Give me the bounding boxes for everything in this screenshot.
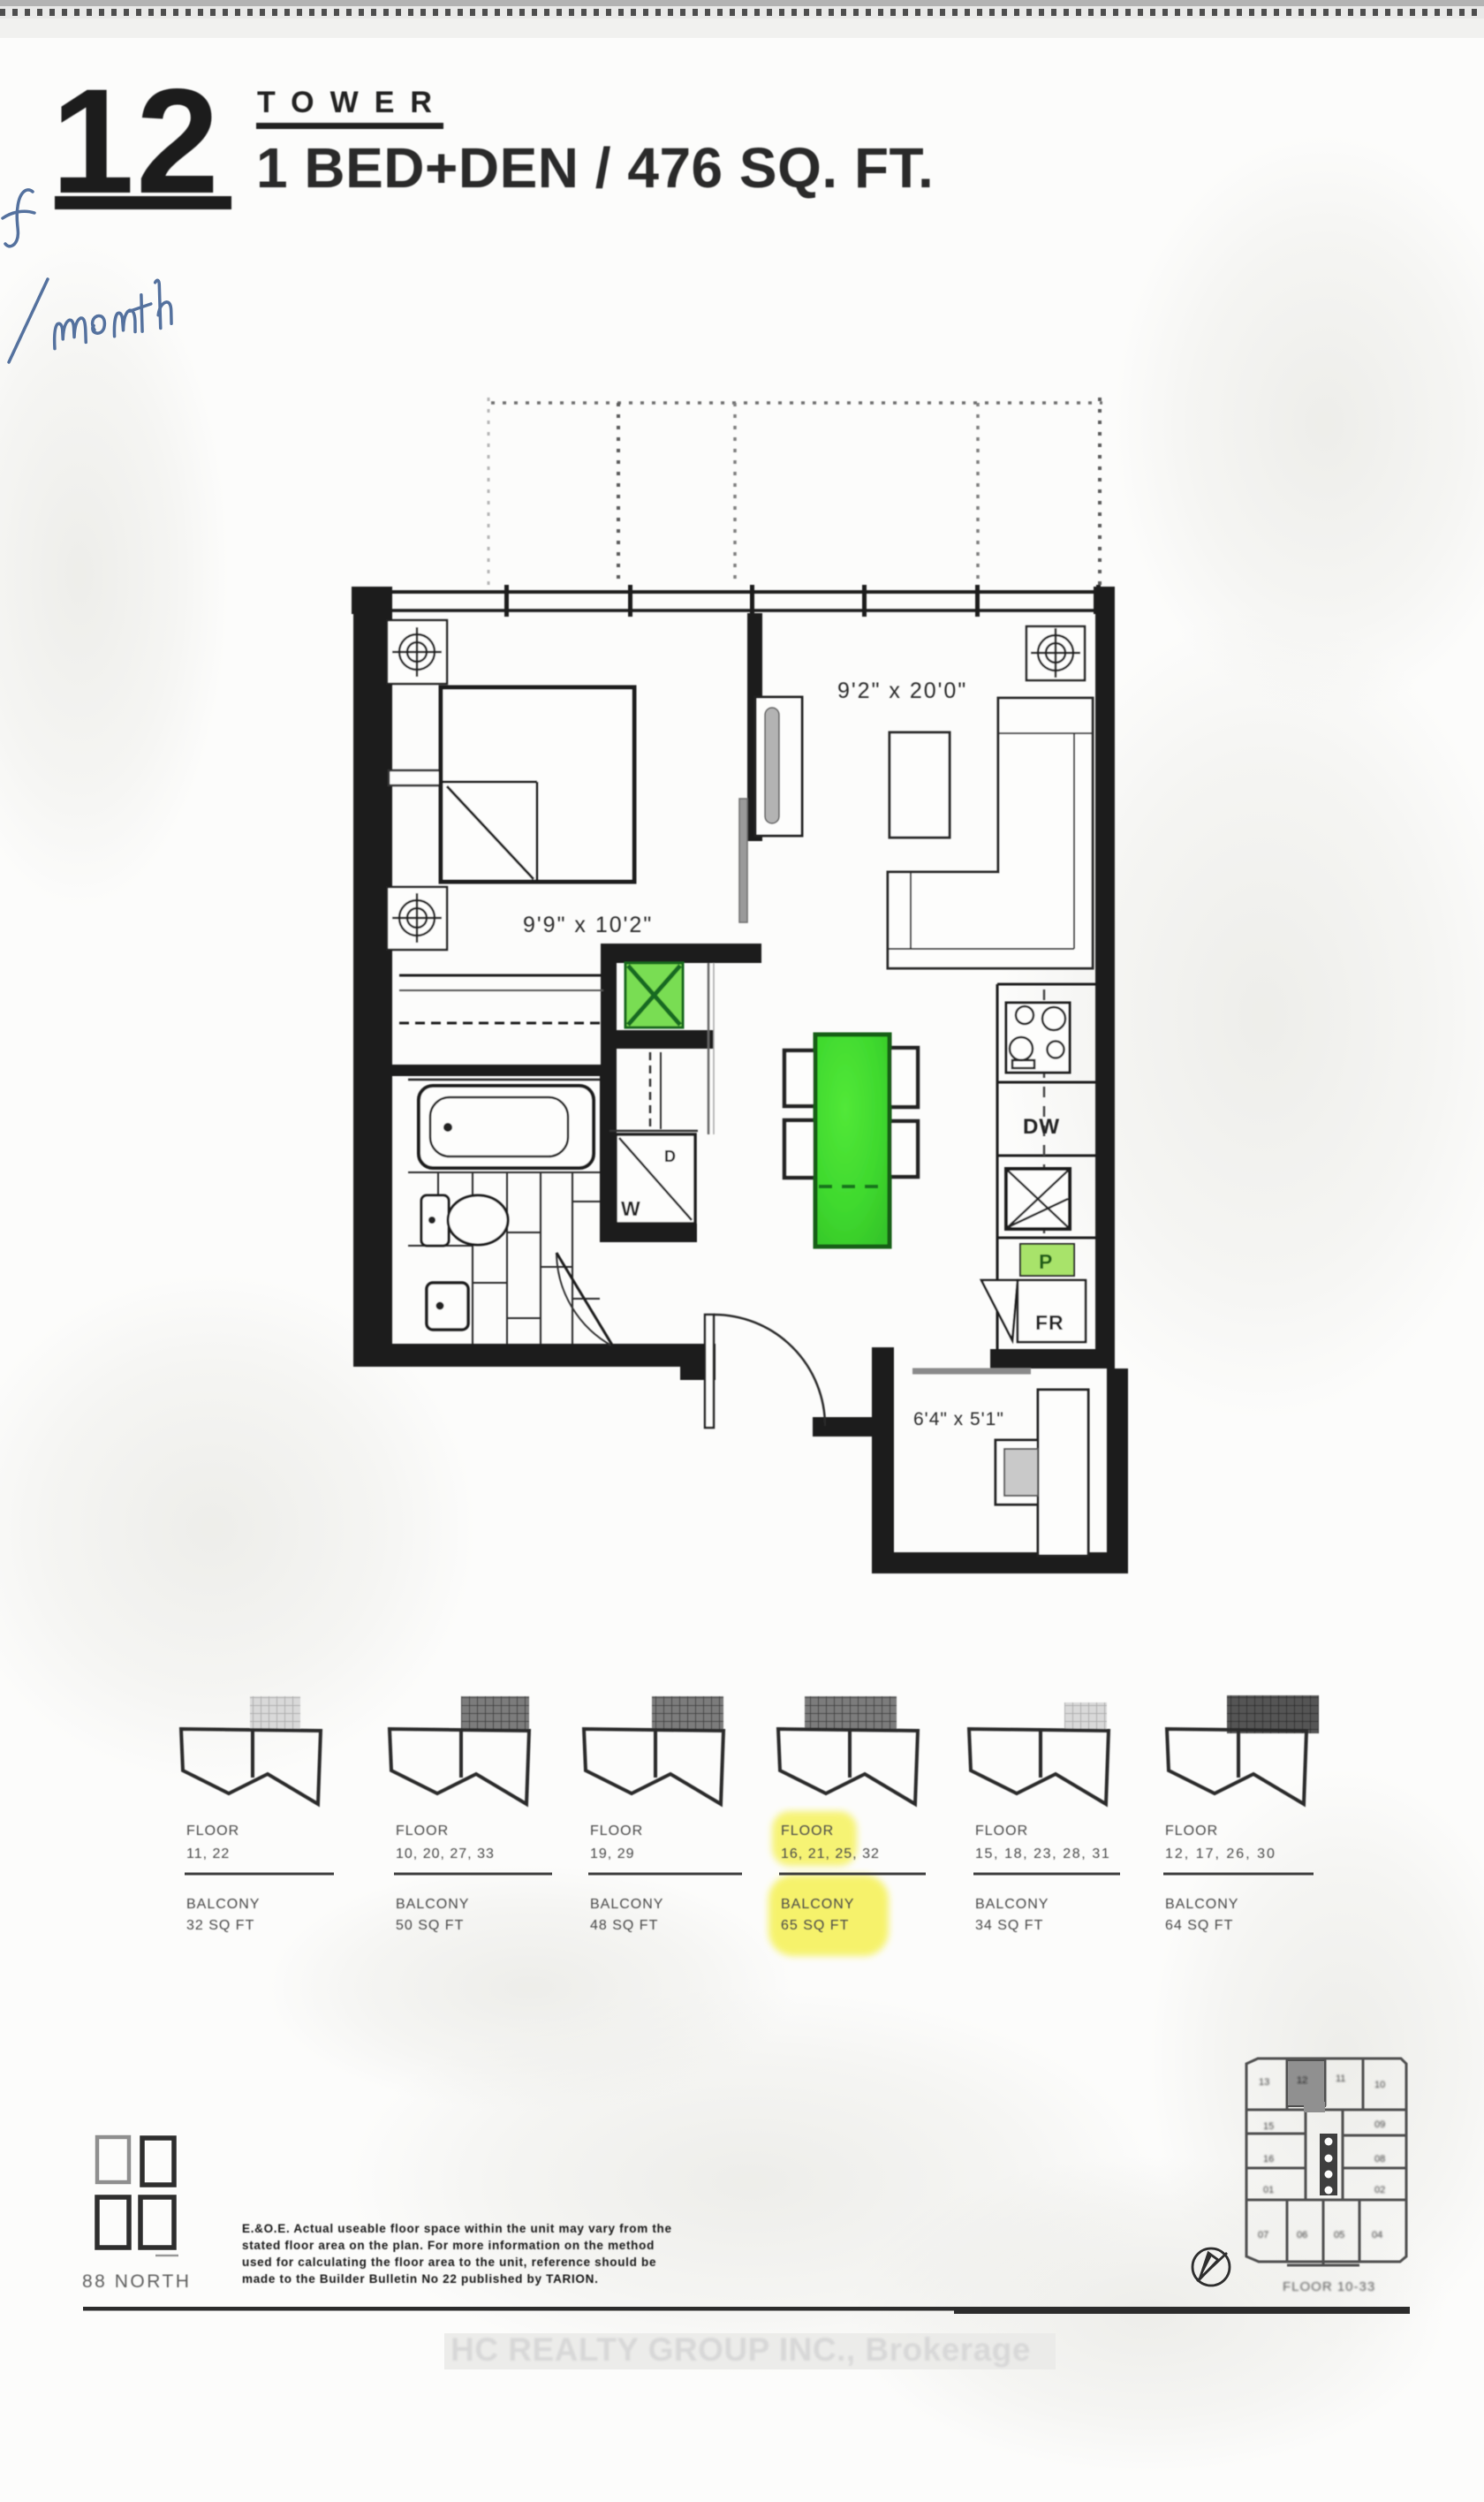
- svg-text:P: P: [1039, 1250, 1052, 1273]
- svg-text:1 BED+DEN / 476 SQ. FT.: 1 BED+DEN / 476 SQ. FT.: [256, 136, 934, 200]
- svg-text:12, 17, 26, 30: 12, 17, 26, 30: [1165, 1846, 1276, 1861]
- svg-text:BALCONY: BALCONY: [781, 1897, 854, 1912]
- svg-text:BALCONY: BALCONY: [975, 1897, 1049, 1912]
- svg-text:15, 18, 23, 28, 31: 15, 18, 23, 28, 31: [975, 1846, 1110, 1861]
- svg-text:FLOOR: FLOOR: [781, 1823, 834, 1839]
- svg-text:HC REALTY GROUP INC., Brokerag: HC REALTY GROUP INC., Brokerage: [450, 2331, 1031, 2368]
- svg-text:09: 09: [1374, 2119, 1385, 2130]
- svg-text:07: 07: [1258, 2230, 1268, 2240]
- svg-text:04: 04: [1372, 2230, 1382, 2240]
- svg-text:64 SQ FT: 64 SQ FT: [1165, 1918, 1233, 1933]
- svg-text:FLOOR: FLOOR: [590, 1823, 643, 1839]
- svg-text:08: 08: [1374, 2154, 1385, 2165]
- svg-text:16, 21, 25, 32: 16, 21, 25, 32: [781, 1846, 880, 1861]
- svg-text:65 SQ FT: 65 SQ FT: [781, 1918, 849, 1933]
- svg-text:BALCONY: BALCONY: [1165, 1897, 1238, 1912]
- svg-text:FLOOR: FLOOR: [396, 1823, 449, 1839]
- svg-text:01: 01: [1263, 2185, 1274, 2195]
- svg-text:FLOOR: FLOOR: [975, 1823, 1028, 1839]
- svg-text:88 NORTH: 88 NORTH: [82, 2271, 191, 2292]
- svg-text:6'4" x 5'1": 6'4" x 5'1": [913, 1409, 1004, 1429]
- svg-text:used for calculating the floor: used for calculating the floor area to t…: [242, 2256, 656, 2269]
- svg-text:9'9" x 10'2": 9'9" x 10'2": [523, 913, 653, 937]
- svg-text:02: 02: [1374, 2185, 1385, 2195]
- svg-text:FLOOR 10-33: FLOOR 10-33: [1283, 2279, 1375, 2294]
- svg-text:FLOOR: FLOOR: [1165, 1823, 1218, 1839]
- svg-text:BALCONY: BALCONY: [396, 1897, 469, 1912]
- svg-text:DW: DW: [1023, 1115, 1060, 1139]
- svg-text:stated floor area on the plan.: stated floor area on the plan. For more …: [242, 2239, 655, 2252]
- svg-text:50 SQ FT: 50 SQ FT: [396, 1918, 464, 1933]
- svg-text:48 SQ FT: 48 SQ FT: [590, 1918, 658, 1933]
- svg-text:16: 16: [1263, 2154, 1274, 2165]
- svg-text:TOWER: TOWER: [257, 86, 448, 119]
- svg-text:9'2" x 20'0": 9'2" x 20'0": [837, 679, 967, 703]
- svg-text:D: D: [664, 1148, 676, 1165]
- svg-text:made to the Builder Bulletin N: made to the Builder Bulletin No 22 publi…: [242, 2272, 599, 2286]
- svg-text:W: W: [621, 1197, 640, 1220]
- svg-text:19, 29: 19, 29: [590, 1846, 634, 1861]
- svg-text:BALCONY: BALCONY: [590, 1897, 663, 1912]
- svg-text:FLOOR: FLOOR: [186, 1823, 239, 1839]
- svg-text:12: 12: [1297, 2075, 1307, 2086]
- svg-text:13: 13: [1259, 2077, 1269, 2088]
- svg-text:15: 15: [1263, 2121, 1274, 2132]
- svg-text:34 SQ FT: 34 SQ FT: [975, 1918, 1043, 1933]
- svg-text:11, 22: 11, 22: [186, 1846, 230, 1861]
- svg-text:06: 06: [1297, 2230, 1307, 2240]
- svg-text:10: 10: [1374, 2080, 1385, 2090]
- svg-text:FR: FR: [1035, 1311, 1064, 1334]
- svg-text:BALCONY: BALCONY: [186, 1897, 260, 1912]
- svg-text:10, 20, 27, 33: 10, 20, 27, 33: [396, 1846, 495, 1861]
- svg-text:32 SQ FT: 32 SQ FT: [186, 1918, 254, 1933]
- svg-text:05: 05: [1334, 2230, 1344, 2240]
- svg-text:E.&O.E. Actual useable floor s: E.&O.E. Actual useable floor space withi…: [242, 2222, 672, 2235]
- svg-text:11: 11: [1336, 2074, 1345, 2084]
